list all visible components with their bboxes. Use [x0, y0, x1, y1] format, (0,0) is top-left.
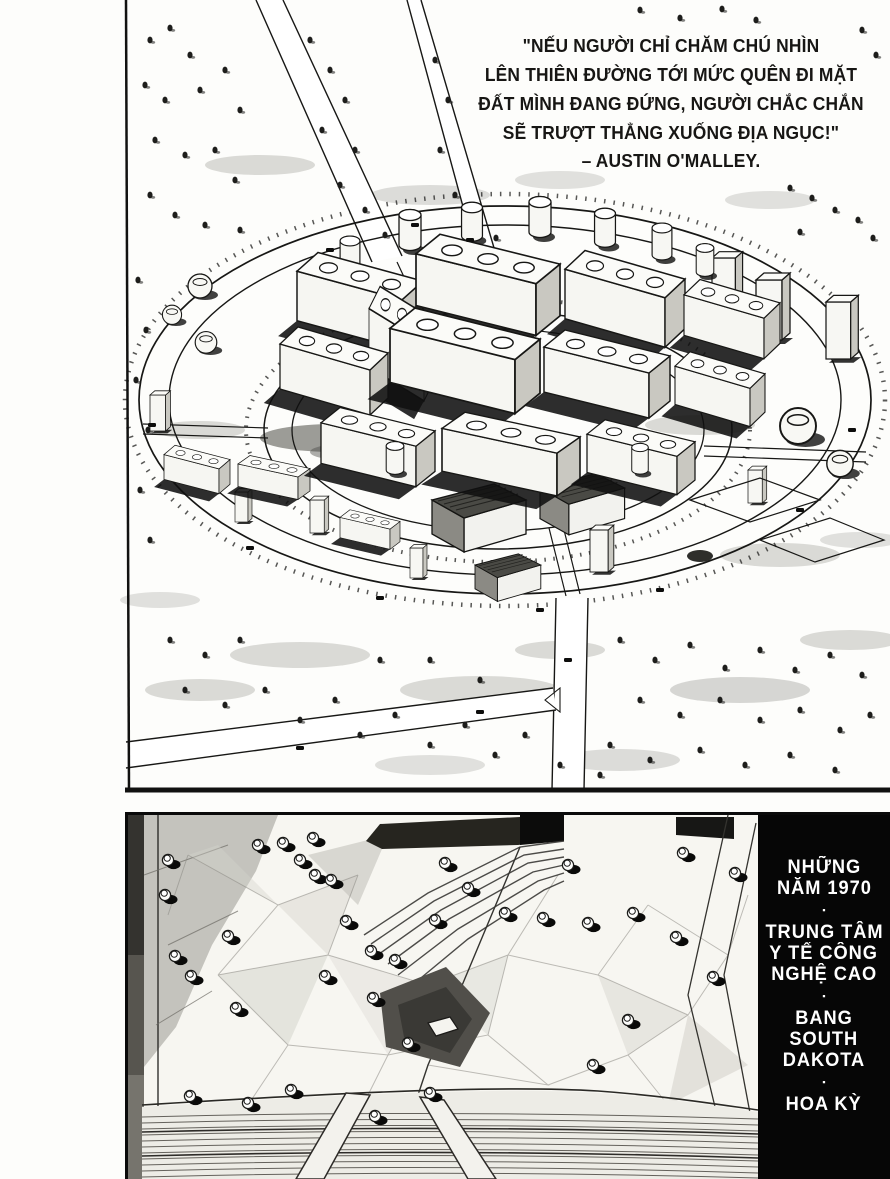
- caption-line: SOUTH: [790, 1029, 859, 1050]
- quote-line: "NẾU NGƯỜI CHỈ CHĂM CHÚ NHÌN: [475, 31, 868, 60]
- quote-attribution: – AUSTIN O'MALLEY.: [475, 147, 868, 175]
- manga-page: "NẾU NGƯỜI CHỈ CHĂM CHÚ NHÌN LÊN THIÊN Đ…: [0, 0, 890, 1179]
- quote-line: SẼ TRƯỢT THẲNG XUỐNG ĐỊA NGỤC!": [475, 118, 868, 147]
- caption-line: TRUNG TÂM: [765, 922, 883, 943]
- stairs: [142, 1089, 758, 1179]
- plaza-illustration: [128, 815, 758, 1179]
- bottom-panel: NHỮNG NĂM 1970 ▪ TRUNG TÂM Y TẾ CÔNG NGH…: [125, 812, 890, 1179]
- caption-line: BANG: [795, 1008, 853, 1029]
- caption-line: NHỮNG: [787, 857, 861, 878]
- caption-line: NGHỆ CAO: [771, 964, 877, 985]
- approach-roads: [256, 0, 497, 262]
- caption-line: NĂM 1970: [777, 878, 872, 899]
- central-buildings: [264, 197, 780, 510]
- quote-line: ĐẤT MÌNH ĐANG ĐỨNG, NGƯỜI CHẮC CHẮN: [475, 89, 868, 118]
- quote-block: "NẾU NGƯỜI CHỈ CHĂM CHÚ NHÌN LÊN THIÊN Đ…: [475, 31, 868, 175]
- caption-separator: ▪: [822, 1078, 825, 1087]
- caption-separator: ▪: [822, 906, 825, 915]
- quote-line: LÊN THIÊN ĐƯỜNG TỚI MỨC QUÊN ĐI MẶT: [475, 60, 868, 89]
- caption-line: Y TẾ CÔNG: [770, 943, 879, 964]
- caption-separator: ▪: [822, 992, 825, 1001]
- caption-column: NHỮNG NĂM 1970 ▪ TRUNG TÂM Y TẾ CÔNG NGH…: [758, 815, 890, 1179]
- caption-line: DAKOTA: [783, 1050, 865, 1071]
- caption-line: HOA KỲ: [786, 1094, 862, 1115]
